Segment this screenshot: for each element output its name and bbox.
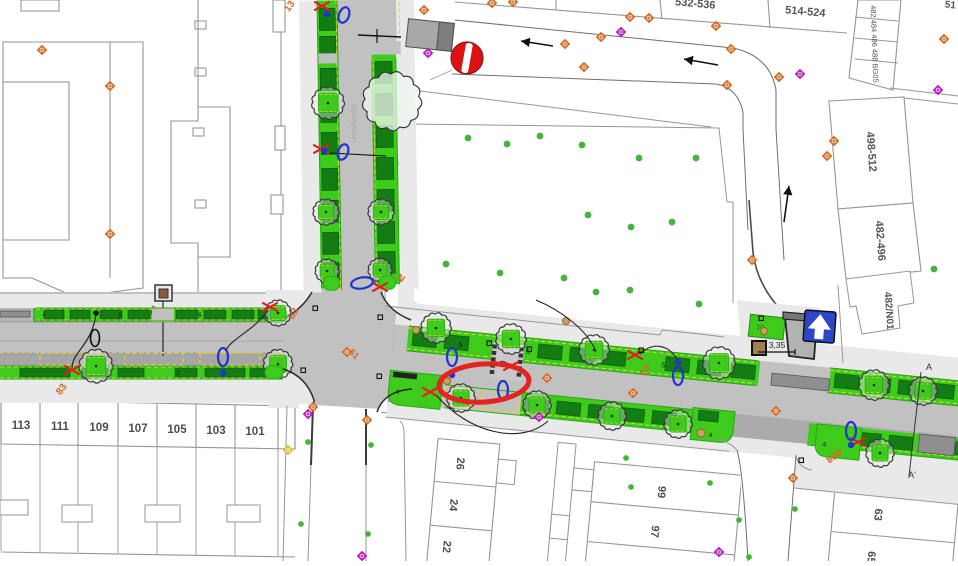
svg-text:97: 97 (648, 525, 661, 538)
svg-text:51: 51 (944, 0, 957, 12)
svg-text:105: 105 (167, 424, 187, 436)
svg-text:101: 101 (245, 426, 265, 438)
svg-text:22: 22 (440, 540, 453, 553)
svg-text:5: 5 (458, 342, 463, 349)
svg-text:107: 107 (128, 423, 147, 435)
svg-text:109: 109 (89, 422, 108, 434)
svg-text:99: 99 (655, 485, 668, 498)
svg-text:4: 4 (708, 432, 713, 439)
svg-text:65: 65 (864, 551, 877, 561)
svg-text:24: 24 (446, 499, 459, 513)
svg-text:111: 111 (51, 421, 70, 433)
svg-text:Springlaan: Springlaan (350, 104, 360, 142)
svg-text:4: 4 (822, 442, 827, 449)
svg-text:A: A (926, 362, 932, 372)
svg-text:A': A' (908, 470, 916, 480)
svg-text:5: 5 (661, 362, 666, 369)
svg-text:3,35: 3,35 (769, 340, 786, 350)
svg-text:113: 113 (12, 420, 31, 432)
svg-text:26: 26 (453, 457, 466, 470)
svg-text:63: 63 (871, 508, 884, 521)
svg-text:5: 5 (526, 349, 531, 356)
svg-text:103: 103 (206, 425, 225, 437)
